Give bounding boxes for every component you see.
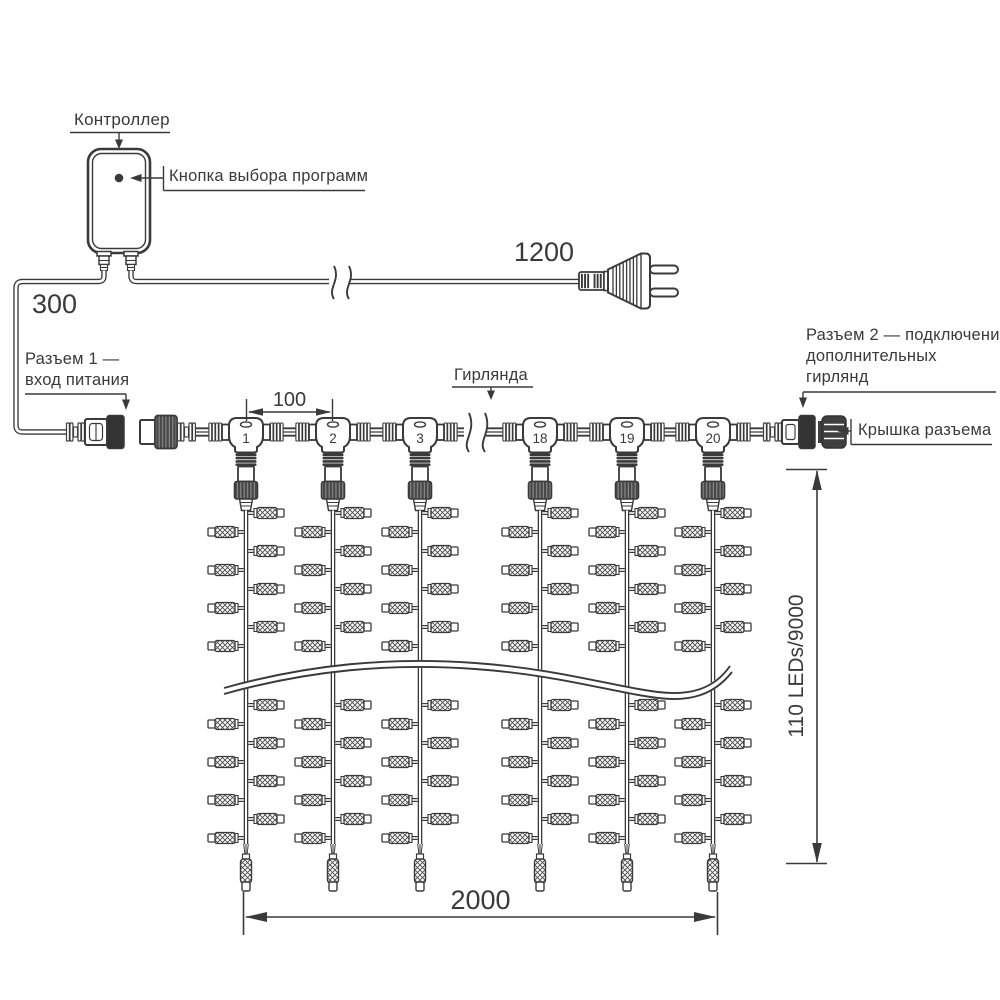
controller-graphic <box>88 149 150 271</box>
junction-number: 20 <box>705 431 720 446</box>
controller-leader <box>70 133 170 150</box>
dim-curtain-height: 110 LEDs/9000 <box>785 594 809 737</box>
garland-wiring-diagram: 123181920 <box>0 0 1000 1000</box>
connector1-leader <box>25 394 130 410</box>
garland-string: 1 <box>208 418 284 891</box>
garland-strings: 123181920 <box>208 418 751 891</box>
label-connector2-line3: гирлянд <box>806 367 1000 388</box>
label-controller: Контроллер <box>74 110 170 130</box>
garland-string: 18 <box>502 418 578 891</box>
label-program-button: Кнопка выбора программ <box>169 166 368 186</box>
diagram-canvas: 123181920 <box>0 0 1000 1000</box>
connector2-leader <box>799 392 996 408</box>
garland-string: 2 <box>295 418 371 891</box>
junction-number: 1 <box>242 431 250 446</box>
junction-number: 18 <box>532 431 547 446</box>
junction-number: 3 <box>416 431 424 446</box>
label-connector2: Разъем 2 — подключение дополнительных ги… <box>806 325 1000 388</box>
power-plug-graphic <box>579 254 678 309</box>
garland-break-mark <box>467 413 488 452</box>
label-garland: Гирлянда <box>454 365 528 385</box>
label-connector2-line2: дополнительных <box>806 346 1000 367</box>
label-connector1: Разъем 1 — вход питания <box>25 349 129 391</box>
label-connector-cap: Крышка разъема <box>858 420 991 440</box>
dim-drop-spacing: 100 <box>246 389 333 412</box>
label-connector1-line1: Разъем 1 — <box>25 349 129 370</box>
junction-number: 2 <box>329 431 337 446</box>
slack-cable <box>224 661 732 699</box>
garland-string: 3 <box>382 418 458 891</box>
program-button-dot <box>115 174 124 183</box>
dim-cord-length: 1200 <box>514 237 574 268</box>
connector2-graphic <box>763 416 815 449</box>
garland-string: 19 <box>589 418 665 891</box>
garland-leader <box>452 387 533 400</box>
dim-power-input-drop: 300 <box>32 289 77 320</box>
dim-curtain-width: 2000 <box>243 885 718 916</box>
label-connector1-line2: вход питания <box>25 370 129 391</box>
garland-string: 20 <box>675 418 751 891</box>
cord-break-mark <box>332 266 351 299</box>
connector1-graphic <box>66 416 196 449</box>
junction-number: 19 <box>619 431 634 446</box>
label-connector2-line1: Разъем 2 — подключение <box>806 325 1000 346</box>
